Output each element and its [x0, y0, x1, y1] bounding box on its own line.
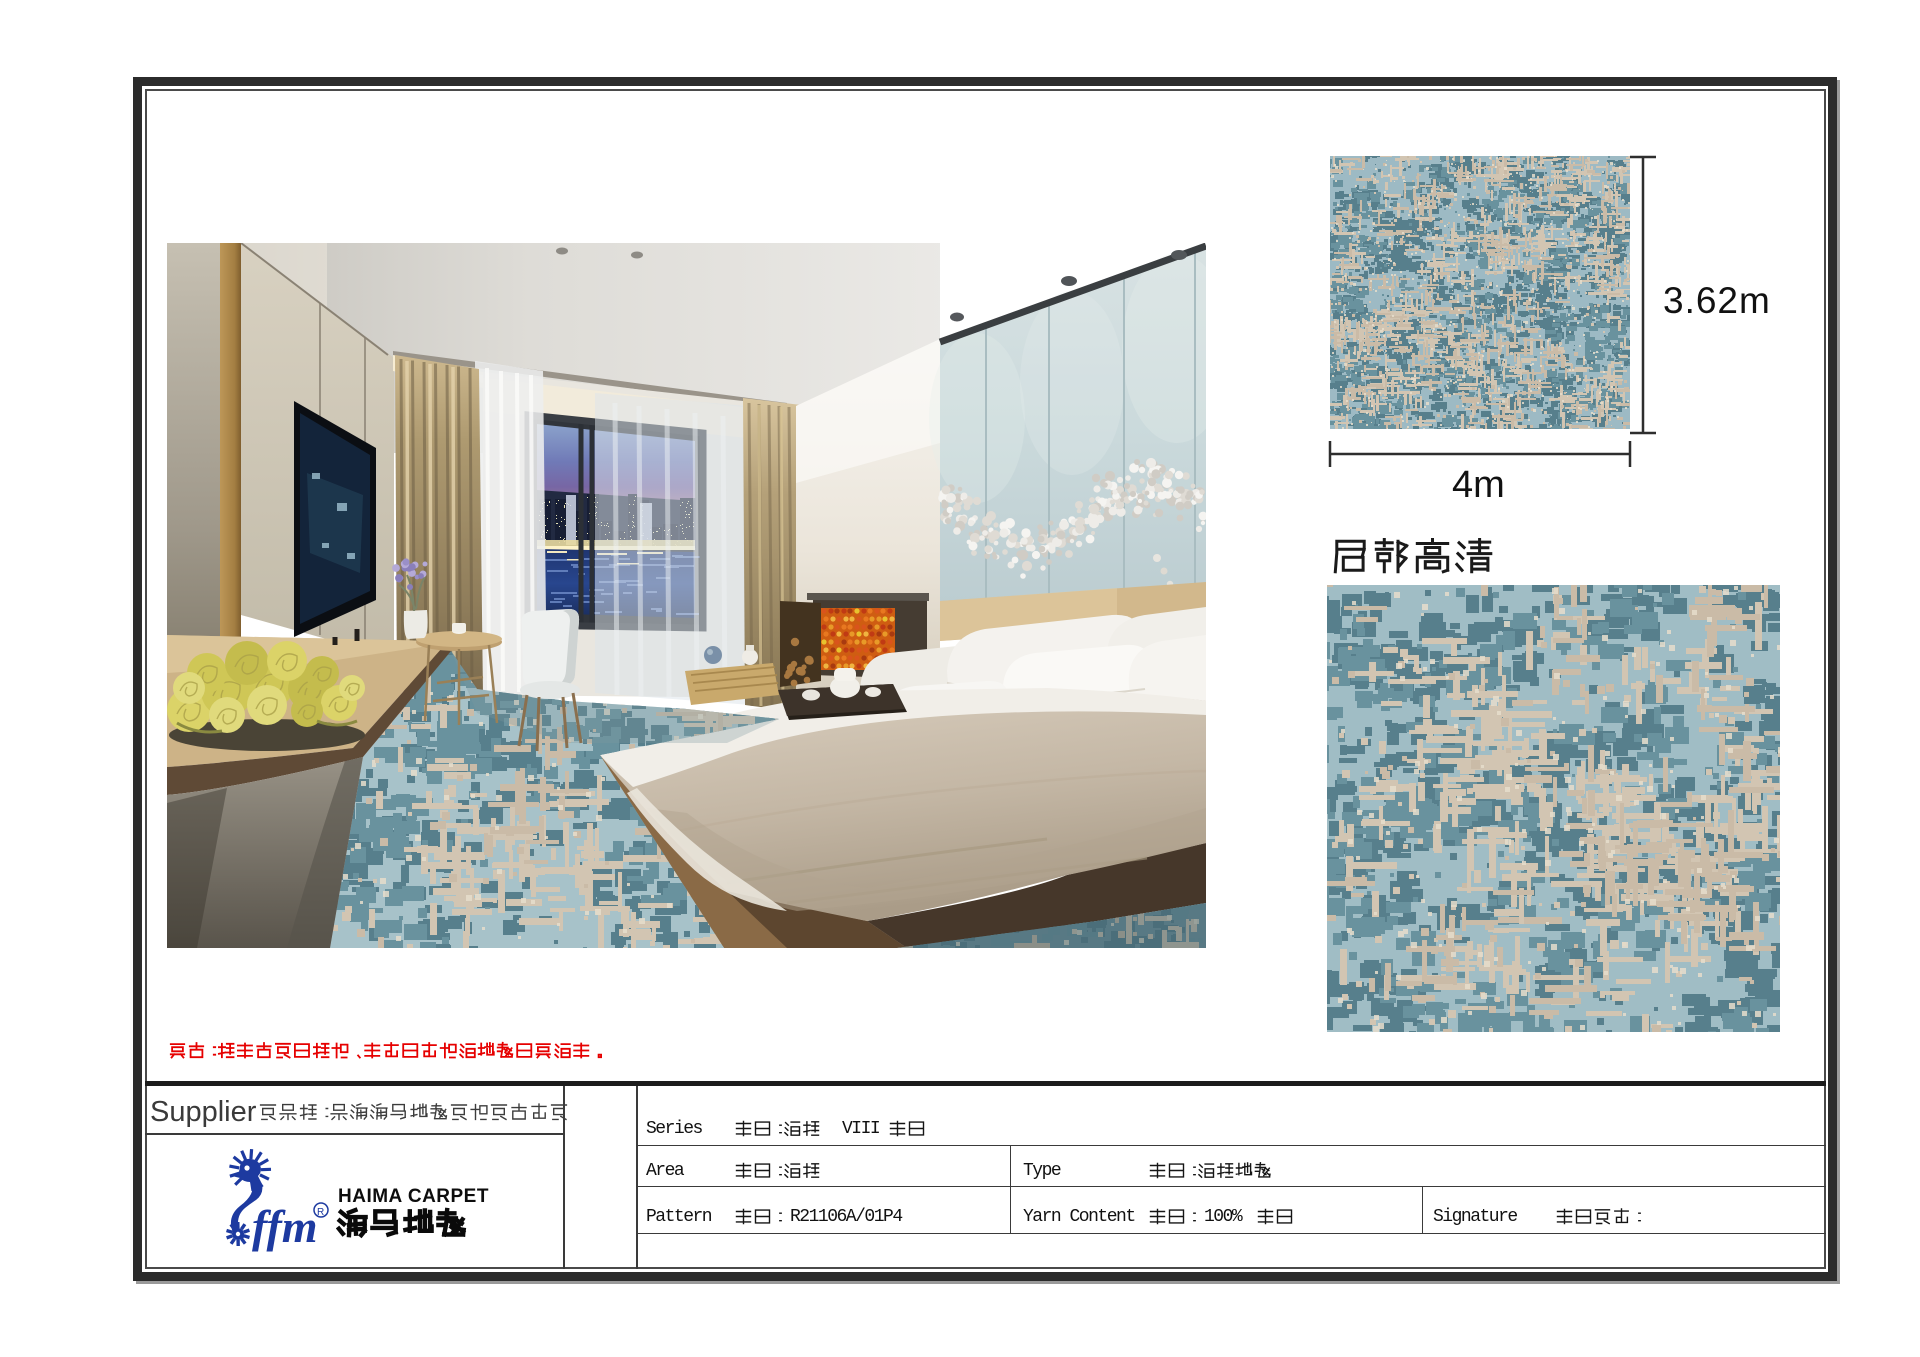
svg-text:ffm: ffm	[252, 1201, 318, 1252]
svg-text:R: R	[317, 1207, 324, 1218]
